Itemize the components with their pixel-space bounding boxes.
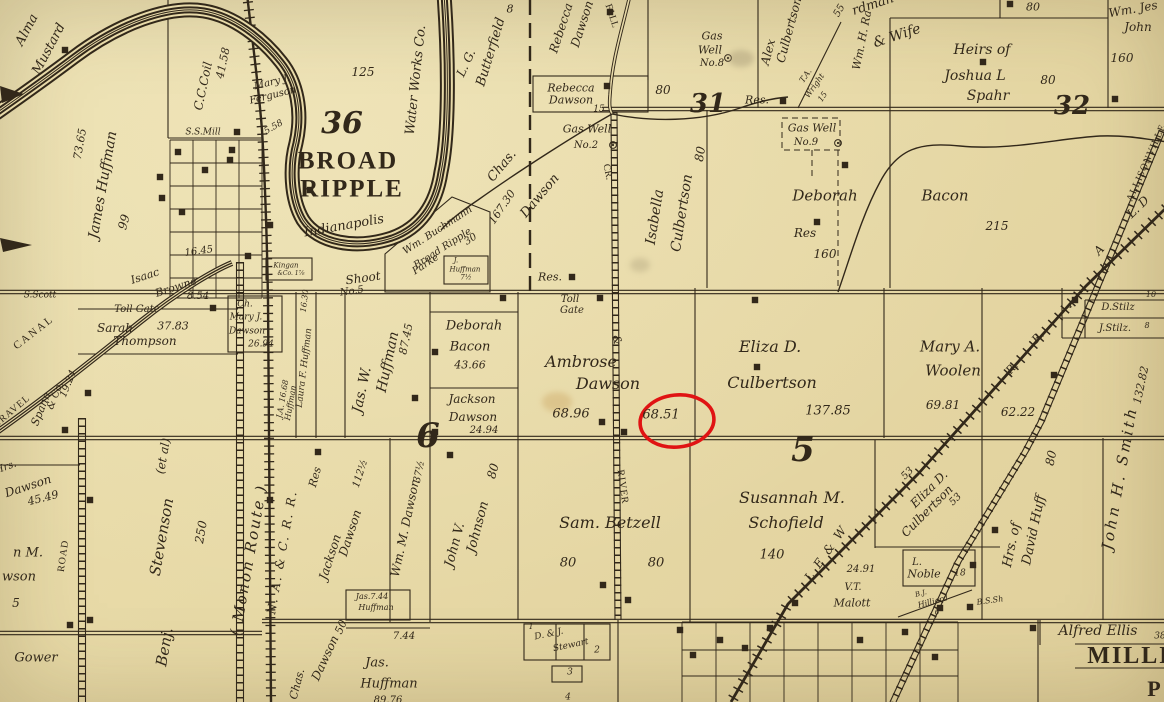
house-marker-icon <box>754 364 760 370</box>
lew-railroad <box>731 208 1164 702</box>
dashed-parcel <box>782 118 840 290</box>
broad-ripple-town-grid <box>170 140 262 298</box>
house-marker-icon <box>752 297 758 303</box>
monon-railroad <box>247 0 271 702</box>
house-marker-icon <box>1007 1 1013 7</box>
house-marker-icon <box>780 98 786 104</box>
house-marker-icon <box>992 527 998 533</box>
red-circle-annotation <box>637 391 716 450</box>
gas-well-markers <box>610 55 842 149</box>
white-river <box>0 0 447 244</box>
house-marker-icon <box>234 129 240 135</box>
paper-stain <box>630 258 650 272</box>
parcel-lines <box>0 0 1164 702</box>
house-marker-icon <box>157 174 163 180</box>
house-marker-icon <box>967 604 973 610</box>
house-marker-icon <box>85 390 91 396</box>
house-marker-icon <box>677 627 683 633</box>
house-marker-icon <box>842 162 848 168</box>
house-marker-icon <box>62 427 68 433</box>
house-marker-icon <box>267 497 273 503</box>
house-marker-icon <box>597 295 603 301</box>
house-marker-icon <box>621 429 627 435</box>
house-marker-icon <box>67 622 73 628</box>
stream <box>441 97 1164 292</box>
house-marker-icon <box>179 209 185 215</box>
house-marker-icon <box>937 605 943 611</box>
house-marker-icon <box>447 452 453 458</box>
house-marker-icon <box>315 449 321 455</box>
plat-map[interactable]: AlmaMustardJames Huffman73.6599C.C.Coil4… <box>0 0 1164 702</box>
house-marker-icon <box>1072 297 1078 303</box>
house-marker-icon <box>202 167 208 173</box>
allisonville-road <box>890 131 1164 702</box>
house-marker-icon <box>159 195 165 201</box>
millersville-town-grid <box>682 622 958 702</box>
paper-stain <box>728 50 754 67</box>
house-marker-icon <box>690 652 696 658</box>
house-marker-icon <box>902 629 908 635</box>
house-marker-icon <box>600 582 606 588</box>
house-marker-icon <box>229 147 235 153</box>
house-marker-icon <box>500 295 506 301</box>
paper-stain <box>542 392 572 412</box>
house-marker-icon <box>87 497 93 503</box>
fall-creek <box>610 0 630 114</box>
house-marker-icon <box>857 637 863 643</box>
house-marker-icon <box>210 305 216 311</box>
house-marker-icon <box>267 222 273 228</box>
house-marker-icon <box>767 625 773 631</box>
central-canal <box>0 263 232 434</box>
house-marker-icon <box>932 654 938 660</box>
house-marker-icon <box>599 419 605 425</box>
house-marker-icon <box>607 9 613 15</box>
house-marker-icon <box>432 429 438 435</box>
house-marker-icon <box>175 149 181 155</box>
house-marker-icon <box>717 637 723 643</box>
house-marker-icon <box>62 47 68 53</box>
house-marker-icon <box>814 219 820 225</box>
house-markers <box>62 1 1118 660</box>
house-marker-icon <box>227 157 233 163</box>
house-marker-icon <box>1051 372 1057 378</box>
house-marker-icon <box>625 597 631 603</box>
house-marker-icon <box>970 562 976 568</box>
house-marker-icon <box>307 187 313 193</box>
house-marker-icon <box>742 645 748 651</box>
house-marker-icon <box>432 349 438 355</box>
house-marker-icon <box>87 617 93 623</box>
house-marker-icon <box>604 83 610 89</box>
house-marker-icon <box>1030 625 1036 631</box>
house-marker-icon <box>792 600 798 606</box>
house-marker-icon <box>569 274 575 280</box>
house-marker-icon <box>412 395 418 401</box>
house-marker-icon <box>980 59 986 65</box>
house-marker-icon <box>1112 96 1118 102</box>
map-linework <box>0 0 1164 702</box>
house-marker-icon <box>245 253 251 259</box>
